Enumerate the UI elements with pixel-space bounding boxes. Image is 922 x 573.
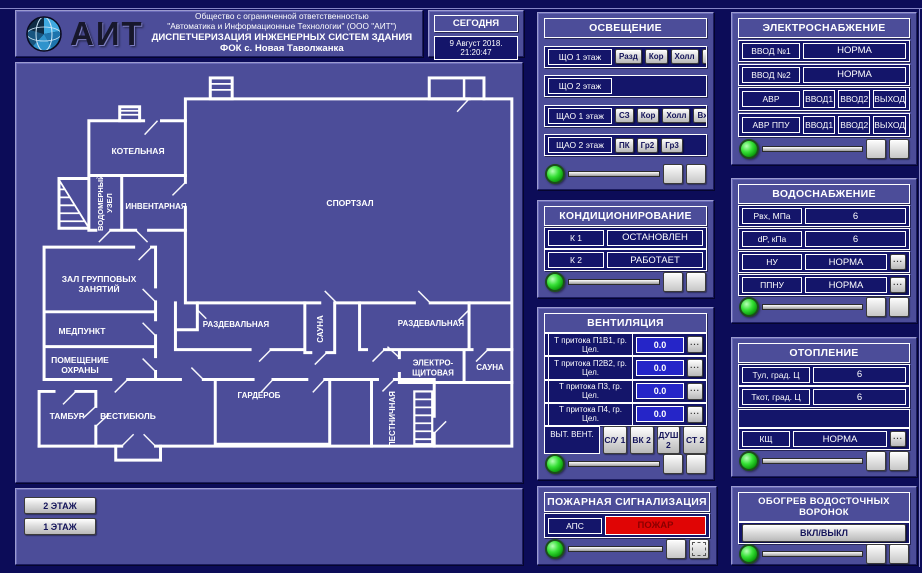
slider-track[interactable] [568,279,660,285]
panel-scrollbar [544,539,710,559]
drain-heating-title: ОБОГРЕВ ВОДОСТОЧНЫХ ВОРОНОК [738,492,910,522]
pump-station-label: ППНУ [742,277,802,293]
today-panel: СЕГОДНЯ 9 Август 2018. 21:20:47 [428,10,524,57]
floor-2-button[interactable]: 2 ЭТАЖ [24,497,96,514]
more-button[interactable]: ... [687,359,703,376]
panel-scrollbar [738,451,910,471]
water-title: ВОДОСНАБЖЕНИЕ [738,184,910,204]
system-title: ДИСПЕТЧЕРИЗАЦИЯ ИНЖЕНЕРНЫХ СИСТЕМ ЗДАНИЯ [150,32,414,43]
power-row: ВВОД №2 НОРМА [738,64,910,86]
lighting-row: ЩО 2 этаж [544,75,707,97]
supply-temp-label: Т притока П1В1, гр. Цел. [548,333,633,356]
floor-selector-panel: 2 ЭТАЖ 1 ЭТАЖ [15,488,523,565]
avr-cell: ВЫХОД [873,90,906,108]
fire-alarm-status: ПОЖАР [605,516,706,535]
slider-button[interactable] [663,164,683,184]
power-title: ЭЛЕКТРОСНАБЖЕНИЕ [738,18,910,38]
boiler-status: НОРМА [793,431,887,447]
slider-button[interactable] [889,297,909,317]
hvac-panel: КОНДИЦИОНИРОВАНИЕ К 1 ОСТАНОВЛЕН К 2 РАБ… [537,200,714,298]
power-row: АВР ВВОД1 ВВОД2 ВЫХОД [738,87,910,111]
panel-scrollbar [544,272,707,292]
slider-button[interactable] [889,451,909,471]
slider-button[interactable] [663,272,683,292]
lighting-group-button[interactable]: Вх [693,108,707,123]
more-button[interactable]: ... [890,254,906,270]
hvac-title: КОНДИЦИОНИРОВАНИЕ [544,206,707,226]
lighting-group-button[interactable]: СЗ [615,108,634,123]
floorplan-panel: КОТЕЛЬНАЯ ВОДОМЕРНЫЙ УЗЕЛ ИНВЕНТАРНАЯ СП… [15,62,523,483]
lighting-group-button[interactable]: Холл [671,49,699,64]
heating-temp-label: Ткот, град. Ц [742,389,810,405]
supply-temp-value: 0.0 [636,360,684,376]
slider-button[interactable] [889,544,909,564]
hvac-unit-status: РАБОТАЕТ [607,252,703,268]
pump-station-label: НУ [742,254,802,270]
status-led-icon [545,164,565,184]
slider-track[interactable] [568,461,660,467]
panel-scrollbar [544,454,707,474]
power-panel: ЭЛЕКТРОСНАБЖЕНИЕ ВВОД №1 НОРМА ВВОД №2 Н… [731,12,917,165]
lighting-group-button[interactable]: Кор [645,49,668,64]
heating-temp-value: 6 [813,389,906,405]
lighting-row: ЩАО 2 этаж ПК Гр2 Гр3 [544,134,707,156]
floorplan-drawing [16,63,522,482]
water-panel: ВОДОСНАБЖЕНИЕ Рвх, МПа 6 dP, кПа 6 НУ НО… [731,178,917,323]
more-button[interactable]: ... [687,336,703,353]
status-led-icon [739,544,759,564]
ventilation-row: Т притока П2В2, гр. Цел. 0.0 ... [544,356,707,379]
avr-ppu-label: АВР ППУ [742,117,800,133]
status-led-icon [545,454,565,474]
fire-alarm-row: АПС ПОЖАР [544,513,710,538]
avr-label: АВР [742,91,800,107]
lighting-group-button[interactable]: СЗ 2 [702,49,707,64]
water-param-value: 6 [805,231,906,247]
water-param-label: dP, кПа [742,231,802,247]
slider-button[interactable] [689,539,709,559]
panel-scrollbar [544,164,707,184]
lighting-panel: ОСВЕЩЕНИЕ ЩО 1 этаж Разд Кор Холл СЗ 2 С… [537,12,714,190]
status-led-icon [739,139,759,159]
fire-alarm-panel: ПОЖАРНАЯ СИГНАЛИЗАЦИЯ АПС ПОЖАР [537,486,717,565]
lighting-row-label: ЩО 1 этаж [548,49,612,65]
fire-alarm-title: ПОЖАРНАЯ СИГНАЛИЗАЦИЯ [544,492,710,512]
hvac-unit-label: К 1 [548,230,604,246]
heating-row: Ткот, град. Ц 6 [738,386,910,408]
slider-button[interactable] [889,139,909,159]
status-led-icon [545,272,565,292]
ventilation-panel: ВЕНТИЛЯЦИЯ Т притока П1В1, гр. Цел. 0.0 … [537,307,714,480]
pump-station-status: НОРМА [805,277,887,293]
ventilation-row: Т притока П4, гр. Цел. 0.0 ... [544,403,707,426]
more-button[interactable]: ... [890,277,906,293]
lighting-row-label: ЩО 2 этаж [548,78,612,94]
boiler-label: КЩ [742,431,790,447]
avr-cell: ВВОД2 [838,90,870,108]
status-led-icon [739,297,759,317]
drain-heating-panel: ОБОГРЕВ ВОДОСТОЧНЫХ ВОРОНОК ВКЛ/ВЫКЛ [731,486,917,565]
slider-button[interactable] [686,272,706,292]
power-input-label: ВВОД №2 [742,67,800,83]
slider-track[interactable] [762,304,863,310]
more-button[interactable]: ... [687,406,703,423]
lighting-row: ЩО 1 этаж Разд Кор Холл СЗ 2 СЗ 3 СЗ 1э [544,46,707,68]
supply-temp-label: Т притока П2В2, гр. Цел. [548,356,633,379]
building-title: ФОК с. Новая Таволжанка [150,43,414,54]
slider-track[interactable] [762,146,863,152]
exhaust-vent-label: ВЫТ. ВЕНТ. [544,426,600,454]
lighting-row-label: ЩАО 1 этаж [548,108,612,124]
slider-button[interactable] [866,544,886,564]
ait-logo-globe-icon [24,14,64,54]
status-led-icon [739,451,759,471]
heating-row: КЩ НОРМА ... [738,428,910,450]
lighting-group-button[interactable]: ПК [615,138,634,153]
avr-cell: ВВОД1 [803,90,835,108]
heating-empty-row [738,409,910,428]
top-frame-line [0,8,922,9]
power-row: ВВОД №1 НОРМА [738,40,910,62]
lighting-group-button[interactable]: Разд [615,49,642,64]
right-frame-line [919,8,920,567]
fire-alarm-label: АПС [548,518,602,534]
slider-button[interactable] [686,454,706,474]
avr-cell: ВЫХОД [873,116,906,134]
water-row: НУ НОРМА ... [738,251,910,273]
water-row: dP, кПа 6 [738,228,910,250]
slider-button[interactable] [866,139,886,159]
avr-cell: ВВОД2 [838,116,870,134]
heating-temp-value: 6 [813,367,906,383]
ventilation-row: Т притока П3, гр. Цел. 0.0 ... [544,380,707,403]
power-row: АВР ППУ ВВОД1 ВВОД2 ВЫХОД [738,113,910,137]
slider-track[interactable] [568,546,663,552]
exhaust-vent-row: ВЫТ. ВЕНТ. С/У 1 ВК 2 ДУШ 2 СТ 2 [544,426,707,454]
lighting-group-button[interactable]: Кор [637,108,660,123]
ventilation-title: ВЕНТИЛЯЦИЯ [544,313,707,333]
heating-row: Тул, град. Ц 6 [738,364,910,386]
lighting-group-button[interactable]: Гр2 [637,138,659,153]
lighting-group-button[interactable]: Гр3 [661,138,683,153]
exhaust-vent-button[interactable]: ДУШ 2 [657,426,681,454]
supply-temp-value: 0.0 [636,406,684,422]
hvac-unit-status: ОСТАНОВЛЕН [607,230,703,246]
company-line-2: "Автоматика и Информационные Технологии"… [150,22,414,32]
slider-button[interactable] [686,164,706,184]
supply-temp-label: Т притока П4, гр. Цел. [548,403,633,426]
heating-temp-label: Тул, град. Ц [742,367,810,383]
header-logo-panel: АИТ Общество с ограниченной ответственно… [15,10,423,57]
supply-temp-label: Т притока П3, гр. Цел. [548,380,633,403]
lighting-row: ЩАО 1 этаж СЗ Кор Холл Вх [544,105,707,127]
water-param-label: Рвх, МПа [742,208,802,224]
hvac-row: К 2 РАБОТАЕТ [544,249,707,271]
logo-text: АИТ [70,17,144,50]
power-input-label: ВВОД №1 [742,43,800,59]
slider-button[interactable] [866,297,886,317]
more-button[interactable]: ... [890,431,906,447]
supply-temp-value: 0.0 [636,383,684,399]
hvac-row: К 1 ОСТАНОВЛЕН [544,227,707,249]
status-led-icon [545,539,565,559]
slider-track[interactable] [568,171,660,177]
exhaust-vent-button[interactable]: С/У 1 [603,426,627,454]
lighting-row-label: ЩАО 2 этаж [548,137,612,153]
company-info: Общество с ограниченной ответственностью… [150,12,414,54]
slider-button[interactable] [666,539,686,559]
drain-on-off-button[interactable]: ВКЛ/ВЫКЛ [742,524,906,542]
slider-button[interactable] [866,451,886,471]
power-input-status: НОРМА [803,43,906,59]
floor-1-button[interactable]: 1 ЭТАЖ [24,518,96,535]
heating-panel: ОТОПЛЕНИЕ Тул, град. Ц 6 Ткот, град. Ц 6… [731,337,917,477]
water-row: ППНУ НОРМА ... [738,274,910,296]
more-button[interactable]: ... [687,383,703,400]
supply-temp-value: 0.0 [636,337,684,353]
panel-scrollbar [738,544,910,564]
lighting-title: ОСВЕЩЕНИЕ [544,18,707,38]
water-row: Рвх, МПа 6 [738,205,910,227]
datetime-display: 9 Август 2018. 21:20:47 [434,36,518,60]
water-param-value: 6 [805,208,906,224]
avr-cell: ВВОД1 [803,116,835,134]
exhaust-vent-button[interactable]: СТ 2 [683,426,707,454]
exhaust-vent-button[interactable]: ВК 2 [630,426,654,454]
slider-track[interactable] [762,551,863,557]
slider-track[interactable] [762,458,863,464]
panel-scrollbar [738,139,910,159]
drain-heating-row: ВКЛ/ВЫКЛ [738,522,910,544]
heating-title: ОТОПЛЕНИЕ [738,343,910,363]
panel-scrollbar [738,297,910,317]
lighting-group-button[interactable]: Холл [662,108,690,123]
power-input-status: НОРМА [803,67,906,83]
today-label: СЕГОДНЯ [434,15,518,32]
slider-button[interactable] [663,454,683,474]
pump-station-status: НОРМА [805,254,887,270]
ventilation-row: Т притока П1В1, гр. Цел. 0.0 ... [544,333,707,356]
hvac-unit-label: К 2 [548,252,604,268]
